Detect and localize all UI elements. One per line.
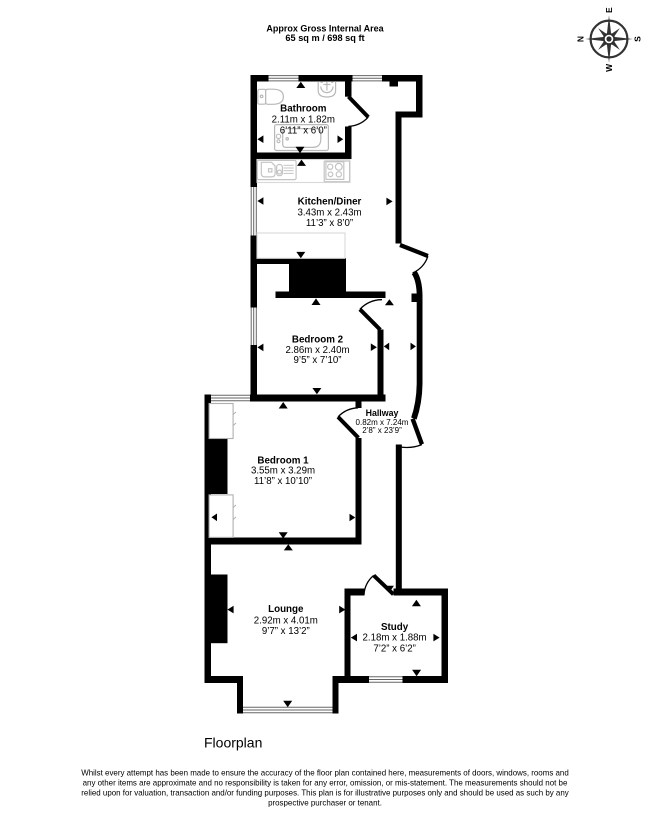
svg-text:Study: Study — [381, 622, 409, 633]
svg-text:Kitchen/Diner: Kitchen/Diner — [298, 197, 362, 208]
svg-text:Lounge: Lounge — [268, 604, 304, 615]
svg-text:2.18m x 1.88m: 2.18m x 1.88m — [363, 633, 427, 644]
svg-text:11’3” x 8’0”: 11’3” x 8’0” — [306, 218, 353, 229]
svg-text:11’8” x 10’10”: 11’8” x 10’10” — [254, 476, 312, 487]
svg-text:any other items are approximat: any other items are approximate and no r… — [83, 779, 568, 788]
svg-text:Whilst every attempt has been: Whilst every attempt has been made to en… — [81, 769, 569, 778]
svg-text:3.55m x 3.29m: 3.55m x 3.29m — [251, 465, 315, 476]
svg-text:relied upon for valuation, tra: relied upon for valuation, transaction a… — [81, 789, 568, 798]
svg-text:Bathroom: Bathroom — [280, 104, 327, 115]
svg-text:65 sq m / 698 sq ft: 65 sq m / 698 sq ft — [285, 33, 364, 43]
svg-text:N: N — [575, 36, 585, 42]
svg-text:W: W — [604, 63, 614, 72]
svg-text:2.11m x 1.82m: 2.11m x 1.82m — [272, 114, 335, 125]
svg-text:Approx Gross Internal Area: Approx Gross Internal Area — [266, 24, 384, 34]
svg-text:9’5” x 7’10”: 9’5” x 7’10” — [294, 355, 342, 366]
svg-text:Hallway: Hallway — [366, 408, 399, 418]
svg-text:Floorplan: Floorplan — [204, 735, 262, 751]
svg-text:2’8” x 23’9”: 2’8” x 23’9” — [362, 426, 402, 435]
svg-text:9’7” x 13’2”: 9’7” x 13’2” — [262, 626, 310, 637]
svg-text:3.43m x 2.43m: 3.43m x 2.43m — [297, 208, 361, 219]
svg-text:E: E — [604, 7, 614, 13]
svg-text:6’11” x 6’0”: 6’11” x 6’0” — [280, 125, 327, 136]
svg-text:7’2” x 6’2”: 7’2” x 6’2” — [373, 643, 416, 654]
svg-text:S: S — [633, 36, 643, 42]
svg-text:Bedroom 2: Bedroom 2 — [292, 334, 344, 345]
svg-text:prospective purchaser or tenan: prospective purchaser or tenant. — [268, 799, 382, 808]
